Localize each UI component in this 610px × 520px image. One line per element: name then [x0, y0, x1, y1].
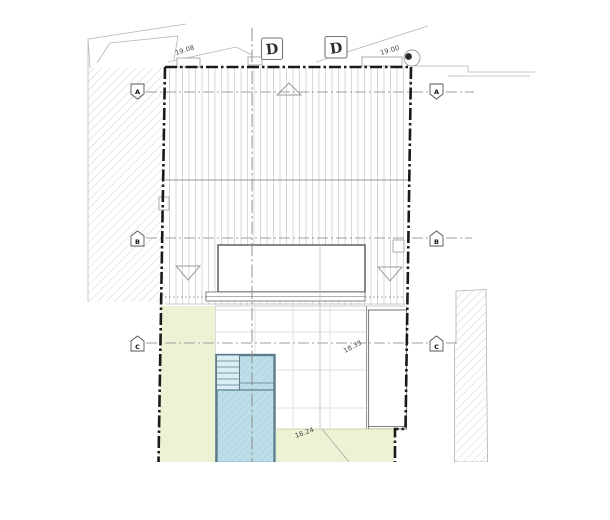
viewport-clip — [0, 462, 610, 520]
pool — [217, 355, 275, 463]
section-marker-d-1: D — [262, 38, 283, 60]
site-plan-canvas[interactable]: A B C A B C D D — [0, 0, 610, 520]
grid-marker-a-right: A — [430, 84, 443, 99]
grid-marker-c-left: C — [131, 336, 144, 351]
svg-text:D: D — [329, 39, 344, 58]
svg-text:A: A — [434, 88, 439, 96]
svg-text:D: D — [265, 40, 279, 58]
annex-roof — [369, 310, 407, 429]
grid-marker-c-right: C — [430, 336, 443, 351]
svg-text:C: C — [434, 343, 439, 351]
neighbor-hatch-right — [455, 290, 488, 463]
neighbor-hatch-top-left — [88, 39, 165, 302]
section-marker-d-2: D — [325, 37, 347, 59]
svg-text:B: B — [135, 238, 140, 246]
site-plan-viewport: A B C A B C D D — [0, 0, 610, 520]
pool-steps — [217, 355, 240, 390]
svg-text:A: A — [135, 88, 140, 96]
roof-terrace-opening — [206, 245, 365, 301]
grid-marker-b-right: B — [430, 231, 443, 246]
elevation-top-left: 19.08 — [174, 44, 195, 57]
elevation-top-right: 19.00 — [379, 44, 400, 57]
svg-text:B: B — [434, 238, 439, 246]
lawn-left — [159, 306, 215, 462]
grid-markers-right: A B C — [430, 84, 443, 351]
svg-text:C: C — [135, 343, 140, 351]
survey-point-marker — [404, 50, 420, 66]
